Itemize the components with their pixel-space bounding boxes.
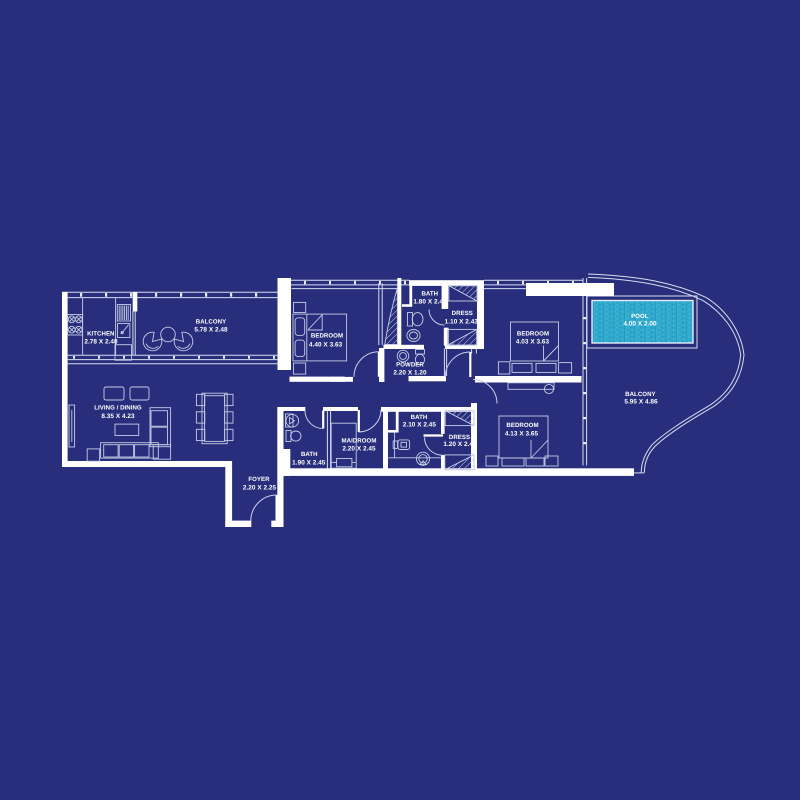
svg-text:DRESS: DRESS <box>452 310 473 317</box>
svg-text:BALCONY: BALCONY <box>196 318 226 325</box>
svg-text:1.80 X 2.43: 1.80 X 2.43 <box>413 298 447 305</box>
svg-text:5.95 X 4.86: 5.95 X 4.86 <box>624 398 658 405</box>
svg-text:1.20 X 2.45: 1.20 X 2.45 <box>443 441 477 448</box>
svg-text:4.40 X 3.63: 4.40 X 3.63 <box>309 341 343 348</box>
svg-text:4.13 X 3.65: 4.13 X 3.65 <box>505 431 539 438</box>
svg-text:BATH: BATH <box>421 290 438 297</box>
svg-text:2.78 X 2.48: 2.78 X 2.48 <box>84 338 118 345</box>
svg-text:FOYER: FOYER <box>248 476 270 483</box>
svg-text:DRESS: DRESS <box>449 434 470 441</box>
svg-text:5.78 X 2.48: 5.78 X 2.48 <box>194 326 228 333</box>
svg-text:1.10 X 2.43: 1.10 X 2.43 <box>445 319 479 326</box>
svg-text:BEDROOM: BEDROOM <box>506 422 538 429</box>
svg-text:BEDROOM: BEDROOM <box>311 332 343 339</box>
svg-text:2.20 X 2.45: 2.20 X 2.45 <box>342 445 376 452</box>
svg-text:POOL: POOL <box>631 313 649 320</box>
svg-text:BEDROOM: BEDROOM <box>517 330 549 337</box>
svg-text:LIVING / DINING: LIVING / DINING <box>94 404 142 411</box>
svg-text:4.00 X 2.00: 4.00 X 2.00 <box>623 321 657 328</box>
svg-text:MAIDROOM: MAIDROOM <box>342 438 377 445</box>
svg-text:2.20 X 2.25: 2.20 X 2.25 <box>243 484 277 491</box>
svg-text:KITCHEN: KITCHEN <box>87 331 114 338</box>
svg-text:2.20 X 1.20: 2.20 X 1.20 <box>393 370 427 377</box>
svg-text:BATH: BATH <box>411 414 428 421</box>
svg-text:BATH: BATH <box>301 451 318 458</box>
svg-text:8.35 X 4.23: 8.35 X 4.23 <box>101 413 135 420</box>
svg-text:BALCONY: BALCONY <box>625 391 655 398</box>
svg-text:1.90 X 2.45: 1.90 X 2.45 <box>292 459 326 466</box>
svg-text:POWDER: POWDER <box>396 362 424 369</box>
svg-text:2.10 X 2.45: 2.10 X 2.45 <box>403 421 437 428</box>
svg-text:4.03 X 3.63: 4.03 X 3.63 <box>516 338 550 345</box>
